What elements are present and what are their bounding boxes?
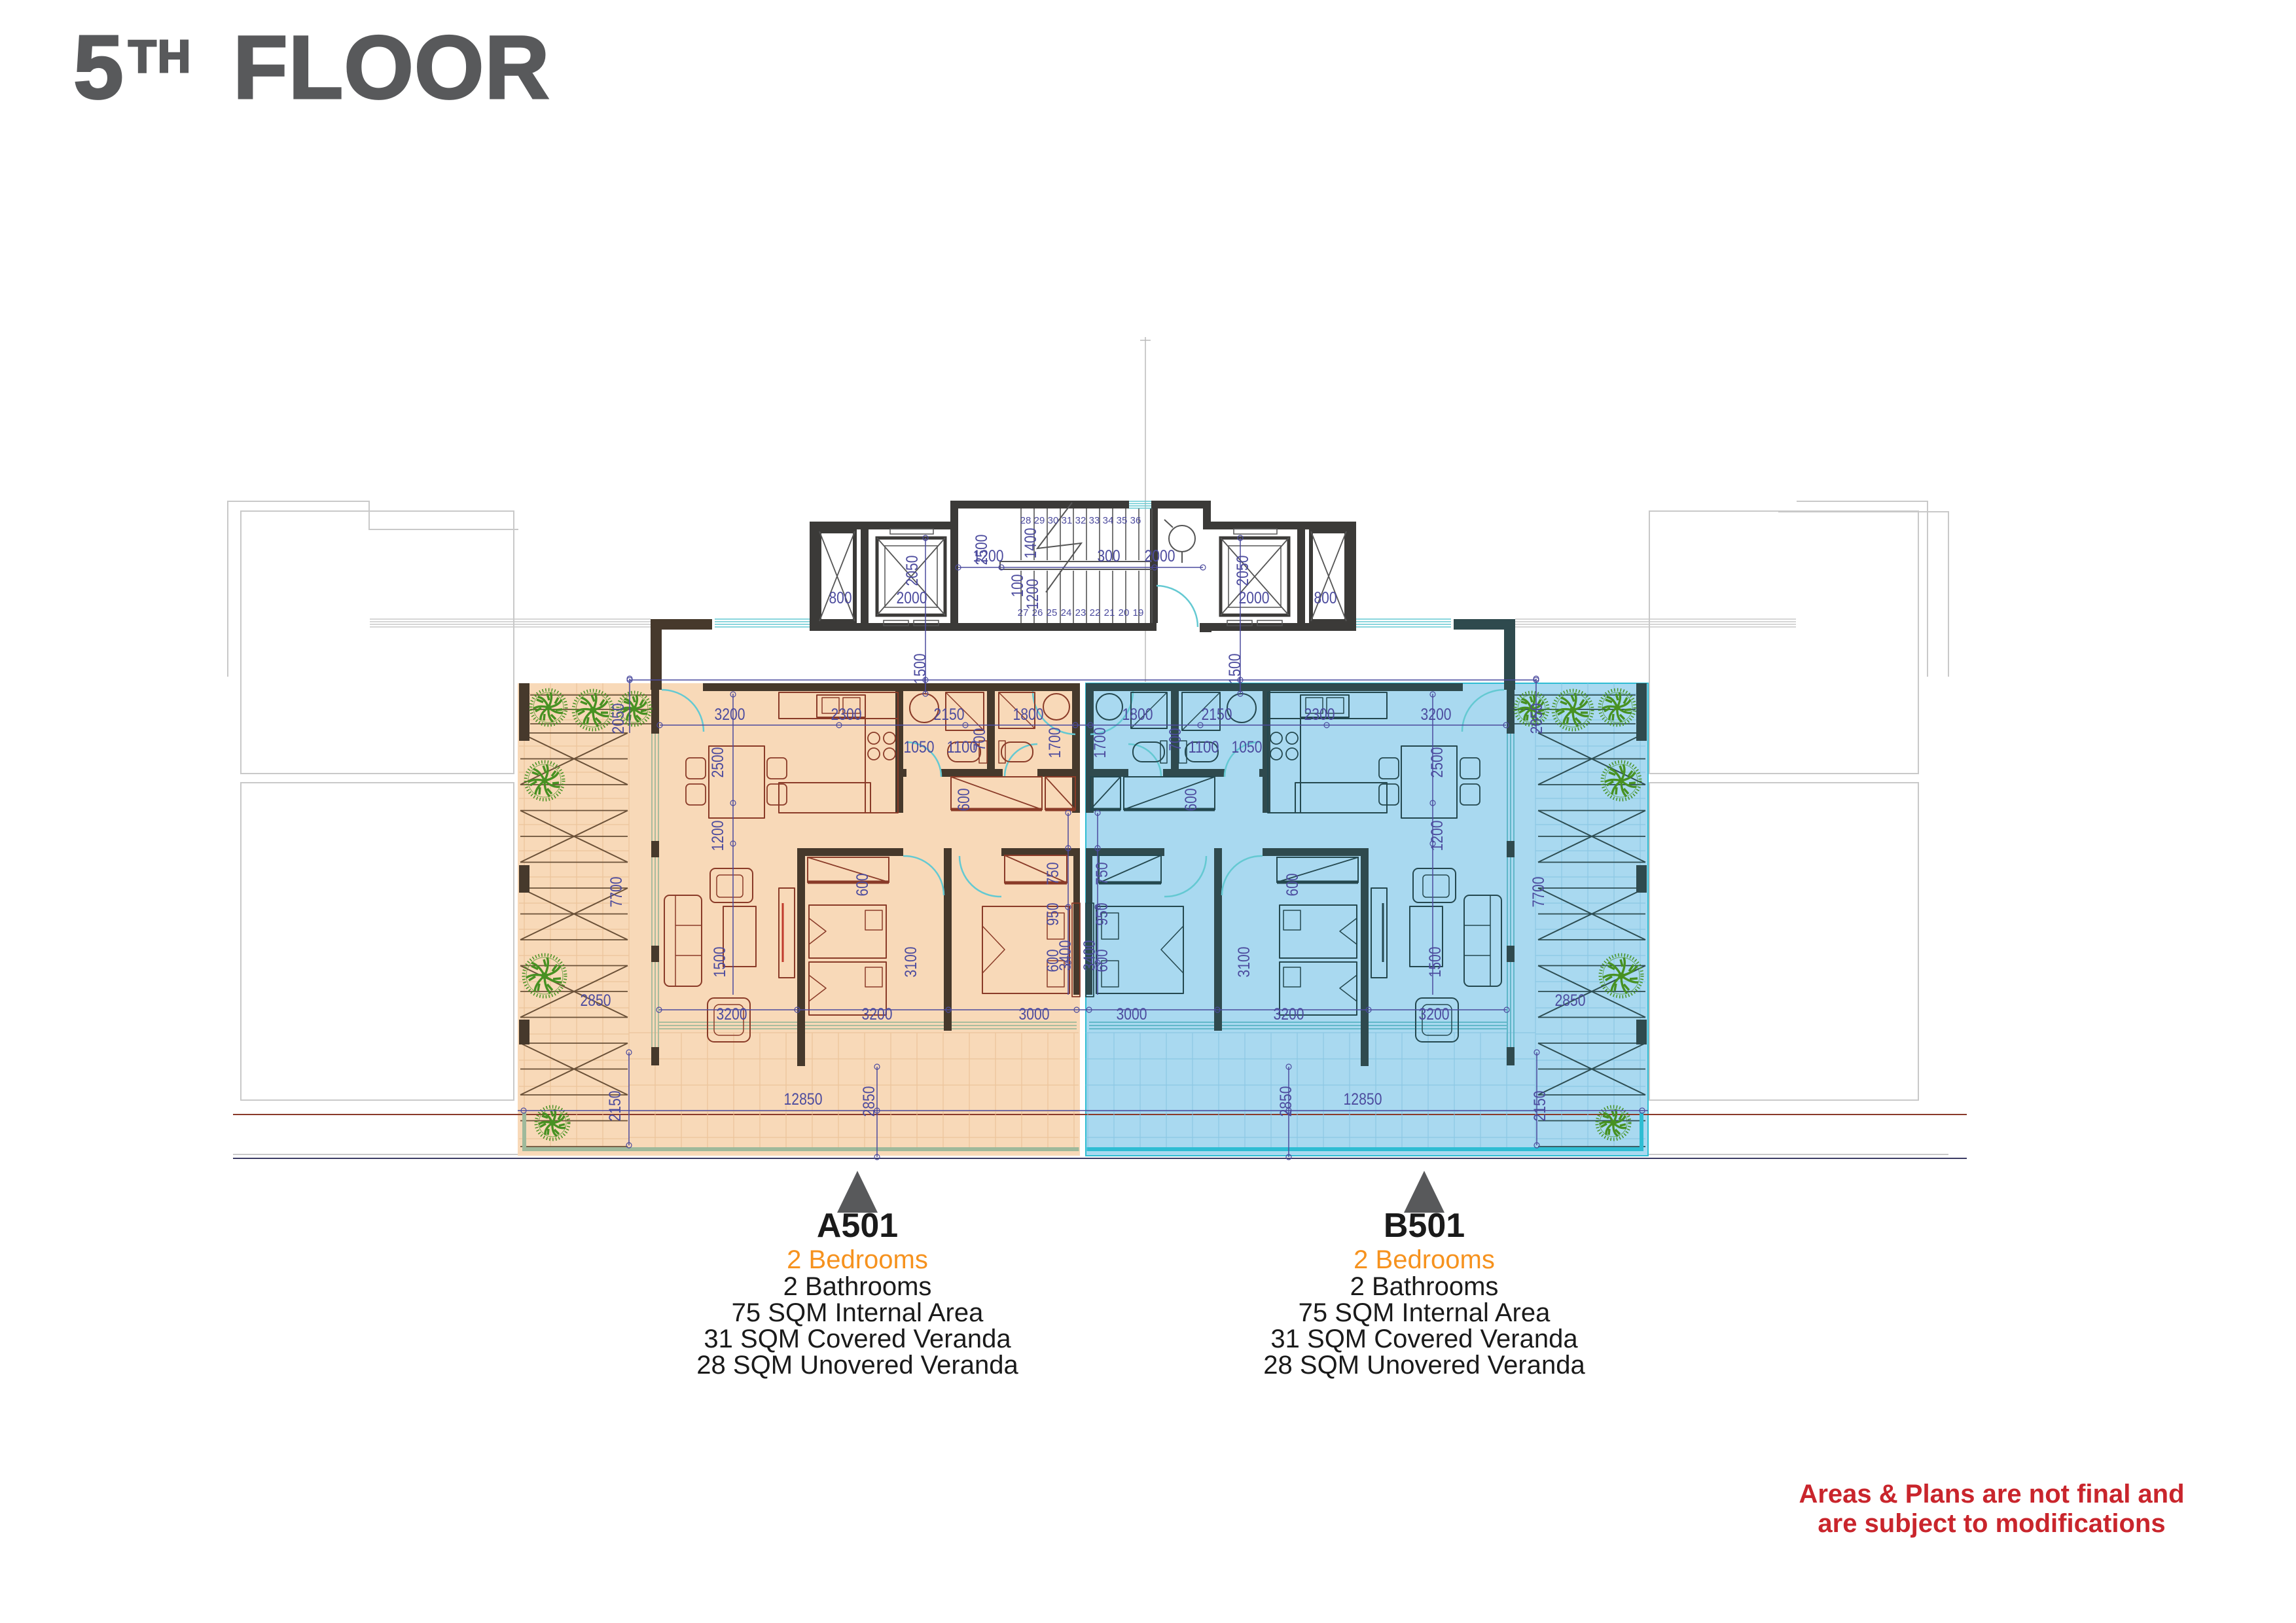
svg-text:are subject to modifications: are subject to modifications (1818, 1509, 2165, 1538)
svg-text:3200: 3200 (862, 1005, 893, 1024)
svg-text:2050: 2050 (609, 704, 628, 734)
svg-text:2 Bedrooms: 2 Bedrooms (787, 1245, 928, 1274)
svg-text:28: 28 (1020, 515, 1031, 526)
svg-text:1050: 1050 (904, 738, 935, 757)
svg-text:34: 34 (1103, 515, 1114, 526)
svg-text:2000: 2000 (1239, 589, 1270, 607)
svg-text:3200: 3200 (1274, 1005, 1304, 1024)
svg-text:2850: 2850 (860, 1086, 878, 1117)
svg-text:1800: 1800 (1122, 705, 1153, 724)
svg-text:2050: 2050 (1234, 556, 1252, 586)
svg-text:31: 31 (1062, 515, 1073, 526)
svg-text:35: 35 (1117, 515, 1128, 526)
svg-text:75 SQM Internal Area: 75 SQM Internal Area (732, 1298, 984, 1327)
svg-text:3200: 3200 (1421, 705, 1452, 724)
svg-text:600: 600 (1283, 874, 1302, 897)
svg-text:2 Bathrooms: 2 Bathrooms (783, 1272, 932, 1301)
svg-text:3200: 3200 (717, 1005, 747, 1024)
svg-text:1500: 1500 (711, 947, 729, 978)
svg-text:3200: 3200 (1419, 1005, 1450, 1024)
svg-text:2150: 2150 (934, 705, 965, 724)
svg-text:600: 600 (955, 789, 973, 811)
svg-text:A501: A501 (817, 1207, 898, 1245)
svg-text:1400: 1400 (1022, 528, 1040, 559)
svg-text:7700: 7700 (607, 877, 626, 908)
svg-text:29: 29 (1034, 515, 1045, 526)
svg-text:1050: 1050 (1232, 738, 1263, 757)
svg-text:1700: 1700 (1046, 728, 1064, 758)
svg-text:33: 33 (1089, 515, 1100, 526)
svg-text:28 SQM Unovered Veranda: 28 SQM Unovered Veranda (1263, 1351, 1585, 1380)
svg-text:25: 25 (1047, 607, 1058, 618)
svg-text:2150: 2150 (1531, 1091, 1549, 1122)
svg-text:31 SQM Covered Veranda: 31 SQM Covered Veranda (1270, 1325, 1578, 1353)
svg-text:3100: 3100 (1235, 947, 1253, 978)
svg-text:600: 600 (1182, 789, 1200, 811)
svg-text:600: 600 (853, 874, 872, 897)
svg-text:800: 800 (1314, 589, 1337, 607)
svg-text:12850: 12850 (784, 1090, 823, 1109)
svg-text:750: 750 (1044, 863, 1062, 885)
svg-text:2000: 2000 (1145, 547, 1175, 565)
svg-text:Areas & Plans are not final an: Areas & Plans are not final and (1799, 1480, 2184, 1508)
svg-text:3400: 3400 (1081, 940, 1099, 971)
svg-text:FLOOR: FLOOR (233, 18, 550, 118)
svg-text:3100: 3100 (902, 947, 920, 978)
svg-text:B501: B501 (1384, 1207, 1465, 1245)
svg-text:2500: 2500 (1428, 747, 1446, 778)
svg-text:2150: 2150 (1202, 705, 1232, 724)
svg-text:2300: 2300 (831, 705, 862, 724)
svg-text:1200: 1200 (1428, 821, 1446, 851)
svg-text:32: 32 (1075, 515, 1086, 526)
svg-text:1200: 1200 (1024, 579, 1042, 610)
svg-text:950: 950 (1044, 903, 1062, 926)
svg-text:2300: 2300 (1304, 705, 1335, 724)
svg-text:7700: 7700 (1530, 877, 1548, 908)
svg-text:2850: 2850 (1277, 1086, 1295, 1117)
svg-text:2050: 2050 (903, 556, 922, 586)
svg-text:31 SQM Covered Veranda: 31 SQM Covered Veranda (704, 1325, 1011, 1353)
svg-text:1100: 1100 (1189, 738, 1219, 757)
svg-text:1800: 1800 (1013, 705, 1044, 724)
svg-text:1200: 1200 (709, 821, 727, 851)
svg-text:700: 700 (971, 728, 989, 751)
svg-text:750: 750 (1093, 863, 1111, 885)
svg-text:21: 21 (1104, 607, 1115, 618)
svg-text:2050: 2050 (1528, 704, 1546, 734)
svg-text:800: 800 (829, 589, 852, 607)
svg-text:24: 24 (1061, 607, 1072, 618)
svg-text:1500: 1500 (1226, 654, 1244, 685)
svg-text:TH: TH (128, 31, 192, 82)
svg-text:5: 5 (73, 17, 124, 118)
svg-text:2150: 2150 (606, 1091, 624, 1122)
svg-text:2500: 2500 (709, 747, 727, 778)
svg-text:1500: 1500 (1426, 947, 1444, 978)
svg-text:1200: 1200 (973, 547, 1004, 565)
svg-text:3000: 3000 (1117, 1005, 1147, 1024)
svg-text:23: 23 (1075, 607, 1086, 618)
svg-text:1500: 1500 (911, 654, 929, 685)
svg-text:28 SQM Unovered Veranda: 28 SQM Unovered Veranda (696, 1351, 1018, 1380)
svg-text:36: 36 (1130, 515, 1141, 526)
svg-text:2850: 2850 (581, 991, 611, 1010)
svg-text:3200: 3200 (715, 705, 745, 724)
svg-text:700: 700 (1166, 728, 1185, 751)
svg-text:20: 20 (1119, 607, 1130, 618)
svg-text:19: 19 (1133, 607, 1144, 618)
svg-text:2850: 2850 (1555, 991, 1586, 1010)
svg-text:75 SQM Internal Area: 75 SQM Internal Area (1299, 1298, 1551, 1327)
svg-text:3000: 3000 (1019, 1005, 1050, 1024)
svg-text:950: 950 (1093, 903, 1111, 926)
svg-text:2000: 2000 (897, 589, 927, 607)
svg-text:12850: 12850 (1344, 1090, 1382, 1109)
svg-text:30: 30 (1048, 515, 1059, 526)
svg-text:22: 22 (1090, 607, 1101, 618)
svg-text:300: 300 (1098, 547, 1121, 565)
svg-text:1700: 1700 (1091, 728, 1109, 758)
svg-text:3400: 3400 (1056, 940, 1075, 971)
svg-text:2 Bedrooms: 2 Bedrooms (1354, 1245, 1495, 1274)
svg-text:2 Bathrooms: 2 Bathrooms (1350, 1272, 1499, 1301)
